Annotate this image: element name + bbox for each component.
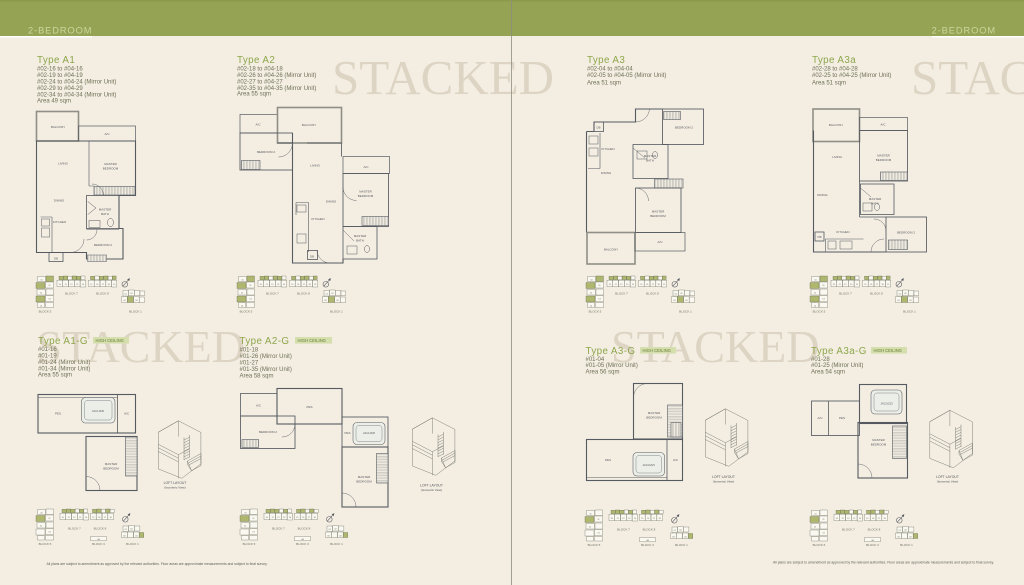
- svg-text:Area 55 sqm: Area 55 sqm: [237, 92, 271, 98]
- svg-text:HIGH CEILING: HIGH CEILING: [96, 338, 124, 343]
- svg-text:MASTER: MASTER: [869, 197, 882, 201]
- svg-text:BATH: BATH: [646, 159, 654, 163]
- svg-text:LIVING: LIVING: [58, 162, 69, 166]
- svg-text:MASTER: MASTER: [652, 210, 665, 214]
- svg-text:Area 58 sqm: Area 58 sqm: [240, 373, 274, 379]
- svg-text:Type A2-G: Type A2-G: [240, 336, 290, 347]
- svg-text:A/C: A/C: [817, 416, 823, 420]
- svg-text:DB: DB: [54, 257, 58, 261]
- svg-text:PES: PES: [55, 412, 61, 416]
- svg-text:BATH: BATH: [101, 212, 109, 216]
- svg-text:MASTER: MASTER: [877, 154, 890, 158]
- svg-text:Area 56 sqm: Area 56 sqm: [586, 370, 620, 376]
- svg-text:#02-04 to #04-04: #02-04 to #04-04: [587, 67, 633, 73]
- svg-text:BEDROOM: BEDROOM: [871, 443, 887, 447]
- svg-text:MASTER: MASTER: [644, 154, 657, 158]
- svg-text:#02-27 to #04-27: #02-27 to #04-27: [237, 80, 283, 86]
- svg-text:KITCHEN: KITCHEN: [601, 147, 614, 151]
- svg-text:#01-28: #01-28: [811, 357, 830, 363]
- svg-text:2-BEDROOM: 2-BEDROOM: [28, 26, 92, 36]
- svg-text:A/C: A/C: [363, 165, 369, 169]
- svg-text:MASTER: MASTER: [358, 475, 371, 479]
- svg-text:DINING: DINING: [601, 171, 612, 175]
- svg-text:DINING: DINING: [817, 193, 828, 197]
- svg-text:MASTER: MASTER: [105, 462, 118, 466]
- svg-text:STACKED: STACKED: [911, 50, 1024, 105]
- svg-text:#01-04: #01-04: [586, 357, 605, 363]
- svg-text:JACUZZI: JACUZZI: [92, 409, 104, 413]
- svg-text:BEDROOM: BEDROOM: [646, 416, 662, 420]
- svg-text:HIGH CEILING: HIGH CEILING: [298, 338, 326, 343]
- svg-text:Area 49 sqm: Area 49 sqm: [37, 99, 71, 105]
- svg-text:BATH: BATH: [871, 202, 879, 206]
- svg-text:A/C: A/C: [673, 458, 679, 462]
- svg-text:BEDROOM: BEDROOM: [356, 480, 372, 484]
- svg-text:BALCONY: BALCONY: [604, 248, 618, 252]
- svg-text:BEDROOM 2: BEDROOM 2: [259, 430, 277, 434]
- svg-text:BEDROOM: BEDROOM: [876, 158, 892, 162]
- svg-text:BEDROOM: BEDROOM: [358, 194, 374, 198]
- svg-text:BALCONY: BALCONY: [302, 123, 316, 127]
- svg-text:BALCONY: BALCONY: [51, 125, 65, 129]
- svg-text:HIGH CEILING: HIGH CEILING: [643, 348, 671, 353]
- svg-text:STACKED: STACKED: [332, 50, 554, 105]
- svg-text:A/C: A/C: [124, 412, 130, 416]
- svg-text:KITCHEN: KITCHEN: [311, 217, 324, 221]
- svg-text:#02-29 to #04-29: #02-29 to #04-29: [37, 86, 83, 92]
- svg-text:#01-26 (Mirror Unit): #01-26 (Mirror Unit): [240, 354, 292, 360]
- svg-text:STACKED: STACKED: [611, 321, 819, 372]
- svg-text:JACUZZI: JACUZZI: [363, 431, 375, 435]
- svg-text:(Isometric View): (Isometric View): [164, 486, 185, 490]
- svg-text:MASTER: MASTER: [648, 411, 661, 415]
- svg-text:#01-35 (Mirror Unit): #01-35 (Mirror Unit): [240, 367, 292, 373]
- svg-text:DINING: DINING: [326, 200, 337, 204]
- svg-text:Area 51 sqm: Area 51 sqm: [812, 81, 846, 87]
- svg-text:(Isometric View): (Isometric View): [713, 480, 734, 484]
- svg-text:A/C: A/C: [104, 132, 110, 136]
- svg-text:DB: DB: [597, 126, 601, 130]
- svg-text:Type A3a-G: Type A3a-G: [811, 346, 867, 357]
- svg-text:#02-05 to #04-05 (Mirror Unit): #02-05 to #04-05 (Mirror Unit): [587, 73, 666, 79]
- svg-text:Type A3a: Type A3a: [812, 55, 856, 66]
- svg-text:A/C: A/C: [255, 123, 261, 127]
- svg-text:#02-19 to #04-19: #02-19 to #04-19: [37, 73, 83, 79]
- svg-text:BEDROOM 2: BEDROOM 2: [675, 126, 693, 130]
- svg-text:BATH: BATH: [356, 239, 364, 243]
- svg-text:Type A1: Type A1: [37, 55, 75, 66]
- svg-text:All plans are subject to amend: All plans are subject to amendment as ap…: [46, 562, 267, 566]
- svg-text:BEDROOM: BEDROOM: [103, 167, 119, 171]
- svg-text:Area 54 sqm: Area 54 sqm: [811, 370, 845, 376]
- svg-text:#02-25 to #04-25 (Mirror Unit): #02-25 to #04-25 (Mirror Unit): [812, 73, 891, 79]
- svg-text:MASTER: MASTER: [99, 208, 112, 212]
- svg-text:BALCONY: BALCONY: [829, 123, 843, 127]
- svg-text:#02-16 to #04-16: #02-16 to #04-16: [37, 67, 83, 73]
- svg-text:A/C: A/C: [657, 240, 663, 244]
- svg-text:KITCHEN: KITCHEN: [836, 230, 849, 234]
- svg-text:#01-18: #01-18: [240, 348, 259, 354]
- svg-text:JACUZZI: JACUZZI: [880, 402, 892, 406]
- svg-text:(Isometric View): (Isometric View): [937, 480, 958, 484]
- svg-text:#01-25 (Mirror Unit): #01-25 (Mirror Unit): [811, 363, 863, 369]
- svg-text:DB: DB: [818, 235, 822, 239]
- svg-text:MASTER: MASTER: [104, 162, 117, 166]
- svg-text:#02-26 to #04-26 (Mirror Unit): #02-26 to #04-26 (Mirror Unit): [237, 73, 316, 79]
- svg-text:LIVING: LIVING: [832, 155, 843, 159]
- svg-text:DINING: DINING: [54, 199, 65, 203]
- svg-text:DB: DB: [310, 255, 314, 259]
- svg-text:PES: PES: [306, 405, 312, 409]
- svg-text:#01-34 (Mirror Unit): #01-34 (Mirror Unit): [38, 366, 90, 372]
- svg-text:BEDROOM 2: BEDROOM 2: [94, 243, 112, 247]
- svg-text:JACUZZI: JACUZZI: [642, 463, 654, 467]
- svg-text:PES: PES: [344, 431, 350, 435]
- svg-text:LOFT LAYOUT: LOFT LAYOUT: [420, 484, 443, 488]
- svg-text:#01-24 (Mirror Unit): #01-24 (Mirror Unit): [38, 360, 90, 366]
- svg-text:Area 55 sqm: Area 55 sqm: [38, 373, 72, 379]
- svg-text:#01-16: #01-16: [38, 347, 57, 353]
- svg-text:BEDROOM 2: BEDROOM 2: [257, 150, 275, 154]
- svg-text:LIVING: LIVING: [310, 164, 321, 168]
- svg-text:All plans are subject to amend: All plans are subject to amendment as ap…: [773, 561, 994, 565]
- svg-text:#02-24 to #04-24 (Mirror Unit): #02-24 to #04-24 (Mirror Unit): [37, 80, 116, 86]
- svg-text:LOFT LAYOUT: LOFT LAYOUT: [712, 475, 735, 479]
- svg-text:LOFT LAYOUT: LOFT LAYOUT: [936, 475, 959, 479]
- svg-text:MASTER: MASTER: [359, 190, 372, 194]
- svg-text:Type A1-G: Type A1-G: [38, 336, 88, 347]
- svg-text:(Isometric View): (Isometric View): [421, 488, 442, 492]
- svg-text:Area 51 sqm: Area 51 sqm: [587, 81, 621, 87]
- svg-text:Type A3: Type A3: [587, 55, 625, 66]
- svg-text:PES: PES: [839, 416, 845, 420]
- svg-text:A/C: A/C: [256, 404, 262, 408]
- svg-text:#01-19: #01-19: [38, 353, 57, 359]
- svg-text:#01-27: #01-27: [240, 360, 259, 366]
- svg-text:PES: PES: [605, 458, 611, 462]
- svg-text:#01-05 (Mirror Unit): #01-05 (Mirror Unit): [586, 363, 638, 369]
- svg-text:Type A2: Type A2: [237, 55, 275, 66]
- svg-text:HIGH CEILING: HIGH CEILING: [874, 348, 902, 353]
- svg-text:2-BEDROOM: 2-BEDROOM: [932, 26, 996, 36]
- svg-text:Type A3-G: Type A3-G: [586, 346, 636, 357]
- svg-text:MASTER: MASTER: [872, 438, 885, 442]
- svg-text:LOFT LAYOUT: LOFT LAYOUT: [164, 481, 187, 485]
- svg-text:BEDROOM: BEDROOM: [103, 467, 119, 471]
- svg-text:BEDROOM 2: BEDROOM 2: [897, 231, 915, 235]
- svg-text:#02-18 to #04-18: #02-18 to #04-18: [237, 67, 283, 73]
- svg-text:#02-28 to #04-28: #02-28 to #04-28: [812, 67, 858, 73]
- svg-text:BEDROOM: BEDROOM: [650, 214, 666, 218]
- svg-text:A/C: A/C: [880, 123, 886, 127]
- svg-text:KITCHEN: KITCHEN: [53, 220, 66, 224]
- svg-text:MASTER: MASTER: [354, 234, 367, 238]
